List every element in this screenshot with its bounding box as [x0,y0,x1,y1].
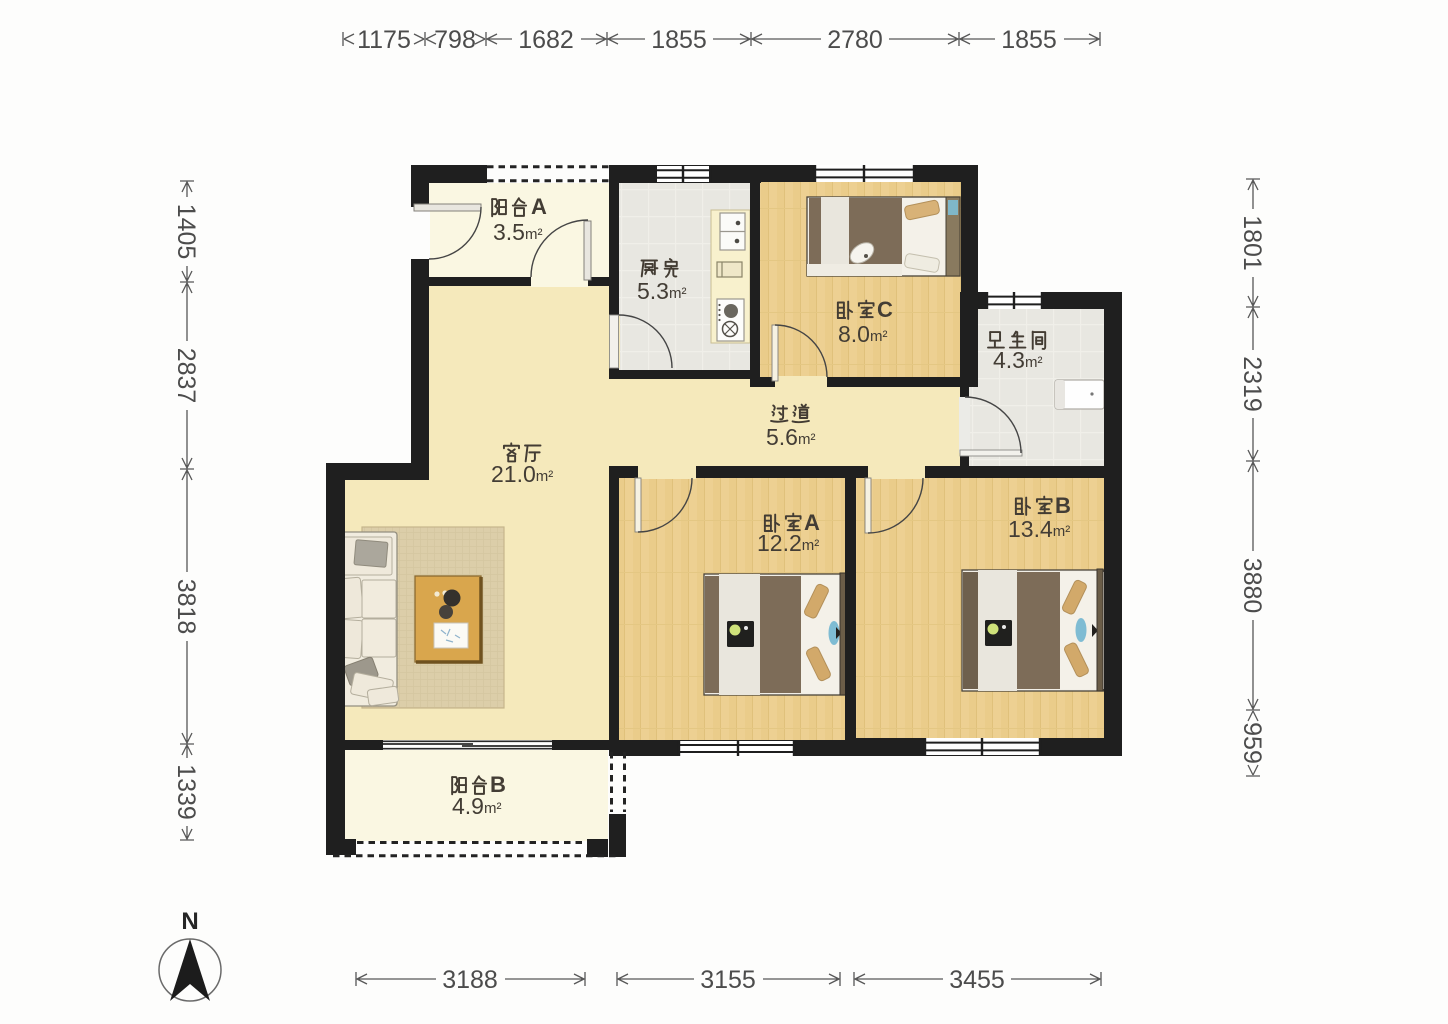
svg-text:3455: 3455 [949,966,1005,994]
svg-text:A: A [804,510,820,535]
svg-text:3880: 3880 [1238,558,1266,614]
svg-text:1855: 1855 [651,26,707,54]
svg-text:3188: 3188 [442,966,498,994]
svg-text:798: 798 [434,26,476,54]
svg-text:1855: 1855 [1001,26,1057,54]
svg-text:B: B [1055,493,1071,518]
svg-text:N: N [181,908,198,935]
svg-text:C: C [877,297,893,322]
svg-text:2780: 2780 [827,26,883,54]
svg-text:3155: 3155 [700,966,756,994]
svg-text:1682: 1682 [518,26,574,54]
svg-text:1405: 1405 [172,204,200,260]
svg-text:1339: 1339 [172,764,200,820]
svg-text:2837: 2837 [172,348,200,404]
svg-text:A: A [531,194,547,219]
svg-text:2319: 2319 [1238,356,1266,412]
svg-text:B: B [490,772,506,797]
svg-text:1175: 1175 [357,26,411,54]
svg-text:959: 959 [1238,722,1266,764]
svg-text:1801: 1801 [1238,215,1266,271]
svg-text:3818: 3818 [172,579,200,635]
